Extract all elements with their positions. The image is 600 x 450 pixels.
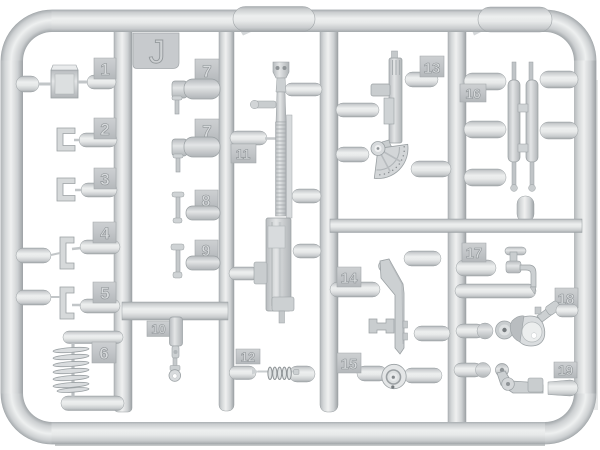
svg-text:6: 6 (99, 344, 108, 363)
svg-text:19: 19 (558, 363, 573, 378)
svg-text:5: 5 (100, 284, 109, 303)
svg-text:15: 15 (341, 356, 358, 373)
svg-text:11: 11 (236, 146, 251, 162)
svg-text:17: 17 (466, 245, 483, 262)
svg-text:3: 3 (100, 170, 109, 189)
svg-text:7: 7 (202, 62, 211, 81)
svg-text:J: J (149, 33, 166, 70)
svg-text:13: 13 (424, 60, 441, 77)
svg-text:16: 16 (465, 86, 481, 102)
svg-text:4: 4 (100, 224, 110, 243)
svg-text:10: 10 (151, 322, 165, 337)
svg-text:1: 1 (100, 60, 109, 79)
svg-text:14: 14 (341, 270, 358, 287)
svg-text:12: 12 (241, 350, 255, 365)
svg-text:2: 2 (100, 120, 109, 139)
